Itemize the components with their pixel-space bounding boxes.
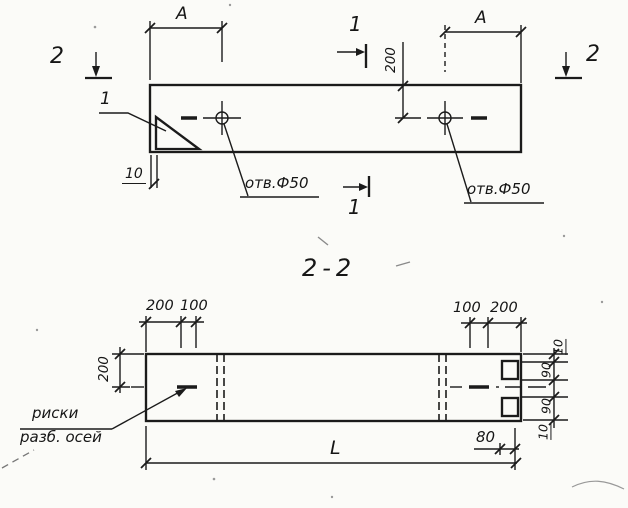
beam-outline-section — [146, 354, 521, 421]
dim-200-label-plan: 200 — [384, 47, 398, 73]
dim-80-label: 80 — [476, 430, 495, 446]
detail-1-callout-label: 1 — [100, 91, 111, 109]
arrowhead — [562, 66, 570, 77]
arrowhead — [356, 48, 365, 56]
dim-chain-label-90-top: 90 — [539, 362, 554, 378]
axis-note-line1: риски — [32, 406, 78, 422]
corner-triangle-mark — [156, 117, 199, 149]
dim-chain-label-10-bottom: 10 — [536, 424, 551, 440]
dim-200-label-top-left: 200 — [146, 299, 174, 314]
hole-diameter-label-left: отв.Ф50 — [245, 176, 309, 192]
dim-top-right — [461, 317, 527, 352]
dim-100-label-top-left: 100 — [180, 299, 208, 314]
dim-100-label-top-right: 100 — [453, 301, 481, 316]
section-view — [20, 316, 568, 470]
section-1-label-bottom: 1 — [348, 197, 361, 218]
arrowhead — [175, 388, 187, 397]
scribe-marks-left — [217, 354, 224, 421]
dim-chain-right — [522, 348, 568, 428]
notch-top — [502, 361, 518, 379]
section-marker-2-left — [85, 52, 112, 78]
dim-A-label-right: A — [475, 10, 487, 28]
dim-L-label: L — [330, 439, 341, 459]
section-2-label-right: 2 — [586, 43, 600, 66]
section-marker-1-top — [337, 44, 366, 68]
dim-chain-label-90-bottom: 90 — [539, 398, 554, 414]
section-2-label-left: 2 — [50, 45, 64, 68]
section-1-label-top: 1 — [349, 14, 362, 35]
dim-200-label-height: 200 — [97, 356, 111, 382]
arrowhead — [92, 66, 100, 77]
blueprint-page: 2 2 A A 1 1 1 200 10 отв.Ф50 отв.Ф50 2-2… — [0, 0, 628, 508]
axis-note-line2: разб. осей — [20, 430, 102, 446]
dim-10-label: 10 — [122, 167, 146, 184]
scribe-marks-right — [439, 354, 446, 421]
dim-200-label-top-right: 200 — [490, 301, 518, 316]
notch-bottom — [502, 398, 518, 416]
section-title: 2-2 — [302, 256, 356, 281]
dim-A-right — [440, 25, 526, 83]
section-marker-2-right — [555, 52, 582, 78]
dim-top-left — [139, 316, 204, 352]
dim-10-thickness — [149, 155, 159, 189]
dim-A-left — [145, 21, 227, 80]
hole-right — [427, 101, 487, 135]
hole-left — [181, 101, 241, 135]
section-marker-1-bottom — [343, 176, 369, 197]
dim-A-label-left: A — [176, 6, 188, 24]
arrowhead — [359, 183, 368, 191]
top-view — [85, 21, 582, 203]
dim-chain-label-10-top: 10 — [551, 339, 566, 355]
hole-diameter-label-right: отв.Ф50 — [467, 182, 531, 198]
dim-left-height — [112, 347, 144, 393]
